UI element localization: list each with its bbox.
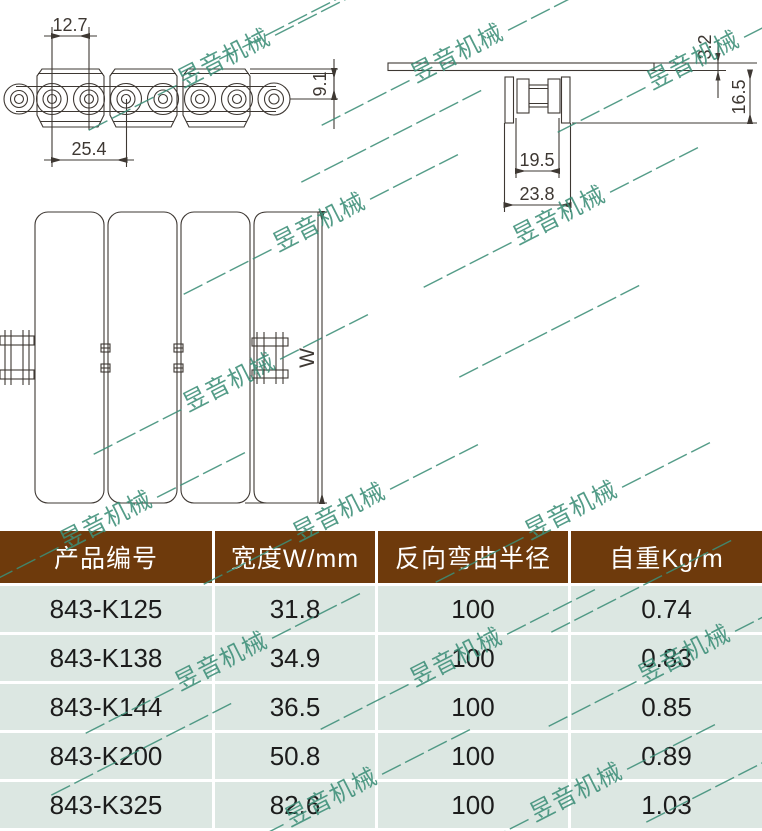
chain-top-plates xyxy=(37,69,250,127)
table-cell-r3-c1: 50.8 xyxy=(215,733,375,779)
dim-plate-thickness-label: 3.2 xyxy=(695,34,715,59)
table-cell-r2-c3: 0.85 xyxy=(571,684,762,730)
top-view-hinge-marks xyxy=(101,344,183,372)
col-header-reverse-bend-radius: 反向弯曲半径 xyxy=(378,531,568,583)
dim-pitch-label: 25.4 xyxy=(71,139,106,159)
col-header-width: 宽度W/mm xyxy=(215,531,375,583)
dim-section-height-label: 16.5 xyxy=(729,79,749,114)
dim-plate-to-center-label: 9.1 xyxy=(310,71,330,96)
table-cell-r2-c1: 36.5 xyxy=(215,684,375,730)
dim-outer-width-label: 23.8 xyxy=(519,184,554,204)
table-cell-r0-c3: 0.74 xyxy=(571,586,762,632)
table-cell-r0-c0: 843-K125 xyxy=(0,586,212,632)
table-cell-r3-c3: 0.89 xyxy=(571,733,762,779)
chain-cross-section: 19.5 23.8 3.2 16.5 xyxy=(388,34,757,212)
top-view-left-link xyxy=(0,330,34,385)
top-view-right-link xyxy=(252,332,288,384)
technical-drawing: 12.7 25.4 9.1 xyxy=(0,0,762,535)
col-header-weight: 自重Kg/m xyxy=(571,531,762,583)
table-cell-r3-c2: 100 xyxy=(378,733,568,779)
cross-section-plate xyxy=(388,63,654,71)
top-view-plate-1 xyxy=(35,212,104,503)
top-view-plate-2 xyxy=(108,212,177,503)
top-view-plate-3 xyxy=(181,212,250,503)
dim-chain-width-label: W xyxy=(296,348,319,368)
table-cell-r0-c2: 100 xyxy=(378,586,568,632)
table-cell-r1-c3: 0.83 xyxy=(571,635,762,681)
table-cell-r2-c0: 843-K144 xyxy=(0,684,212,730)
col-header-product-code: 产品编号 xyxy=(0,531,212,583)
cross-section-roller xyxy=(517,79,560,113)
table-cell-r4-c1: 82.6 xyxy=(215,782,375,828)
table-cell-r1-c1: 34.9 xyxy=(215,635,375,681)
chain-top-view: W xyxy=(0,212,327,503)
dim-section-height: 16.5 xyxy=(572,71,757,124)
table-cell-r4-c2: 100 xyxy=(378,782,568,828)
dim-inner-width-label: 19.5 xyxy=(519,150,554,170)
table-cell-r3-c0: 843-K200 xyxy=(0,733,212,779)
chain-side-view: 12.7 25.4 9.1 xyxy=(4,15,338,167)
table-cell-r1-c0: 843-K138 xyxy=(0,635,212,681)
dim-plate-to-center: 9.1 xyxy=(250,59,338,129)
table-cell-r4-c0: 843-K325 xyxy=(0,782,212,828)
table-cell-r2-c2: 100 xyxy=(378,684,568,730)
datasheet-page: 12.7 25.4 9.1 xyxy=(0,0,762,831)
table-cell-r0-c1: 31.8 xyxy=(215,586,375,632)
dim-half-pitch-label: 12.7 xyxy=(52,15,87,35)
dim-inner-width: 19.5 xyxy=(516,118,559,178)
spec-table: 产品编号 宽度W/mm 反向弯曲半径 自重Kg/m 843-K12531.810… xyxy=(0,531,762,828)
table-cell-r4-c3: 1.03 xyxy=(571,782,762,828)
chain-rollers xyxy=(37,84,253,115)
table-cell-r1-c2: 100 xyxy=(378,635,568,681)
